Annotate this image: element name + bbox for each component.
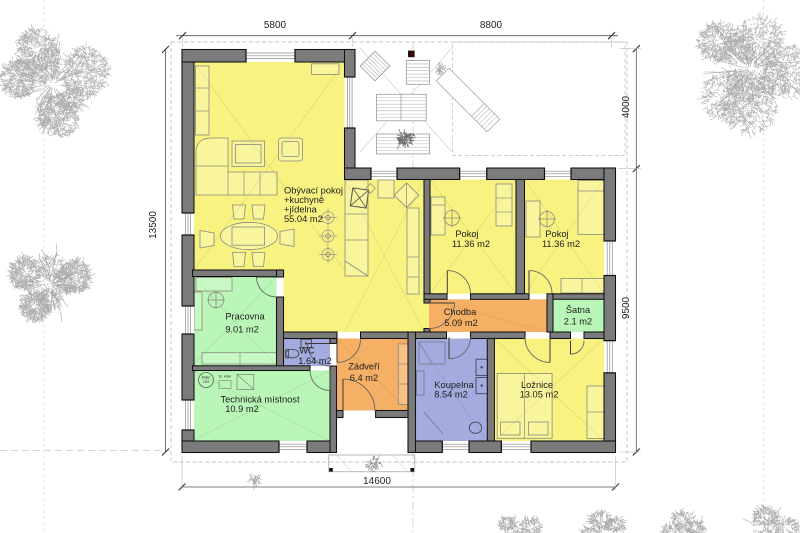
svg-text:11.36 m2: 11.36 m2 [542, 239, 580, 249]
svg-text:+jídelna: +jídelna [284, 205, 318, 215]
svg-text:13500: 13500 [148, 211, 159, 239]
svg-text:Pokoj: Pokoj [545, 229, 568, 239]
svg-text:Pracovna: Pracovna [225, 312, 265, 322]
svg-text:9500: 9500 [621, 296, 632, 319]
svg-text:5800: 5800 [264, 20, 287, 31]
svg-text:10.9 m2: 10.9 m2 [225, 404, 259, 414]
svg-text:Chodba: Chodba [444, 307, 477, 317]
svg-text:13.05 m2: 13.05 m2 [520, 390, 559, 400]
svg-text:Zádveří: Zádveří [348, 362, 380, 372]
svg-text:8800: 8800 [480, 20, 503, 31]
svg-text:1.64 m2: 1.64 m2 [298, 356, 332, 366]
svg-text:14600: 14600 [363, 476, 391, 487]
svg-text:6.4 m2: 6.4 m2 [350, 373, 378, 383]
svg-text:Šatna: Šatna [566, 305, 591, 315]
svg-text:Ložnice: Ložnice [521, 380, 553, 390]
svg-text:9.01 m2: 9.01 m2 [225, 325, 259, 335]
svg-text:8.54 m2: 8.54 m2 [434, 390, 468, 400]
svg-text:5.09 m2: 5.09 m2 [444, 318, 478, 328]
svg-text:55.04 m2: 55.04 m2 [284, 214, 323, 224]
svg-text:2.1 m2: 2.1 m2 [564, 317, 592, 327]
svg-text:Koupelna: Koupelna [434, 380, 474, 390]
svg-text:4000: 4000 [621, 95, 632, 118]
svg-text:+kuchyně: +kuchyně [284, 195, 324, 205]
svg-text:Obývací pokoj: Obývací pokoj [284, 186, 343, 196]
svg-text:Pokoj: Pokoj [455, 229, 478, 239]
svg-text:Technická místnost: Technická místnost [220, 395, 299, 405]
svg-text:11.36 m2: 11.36 m2 [452, 239, 490, 249]
svg-text:El. kotel: El. kotel [219, 375, 231, 379]
svg-text:150l: 150l [203, 380, 210, 384]
svg-text:WC: WC [299, 346, 315, 356]
